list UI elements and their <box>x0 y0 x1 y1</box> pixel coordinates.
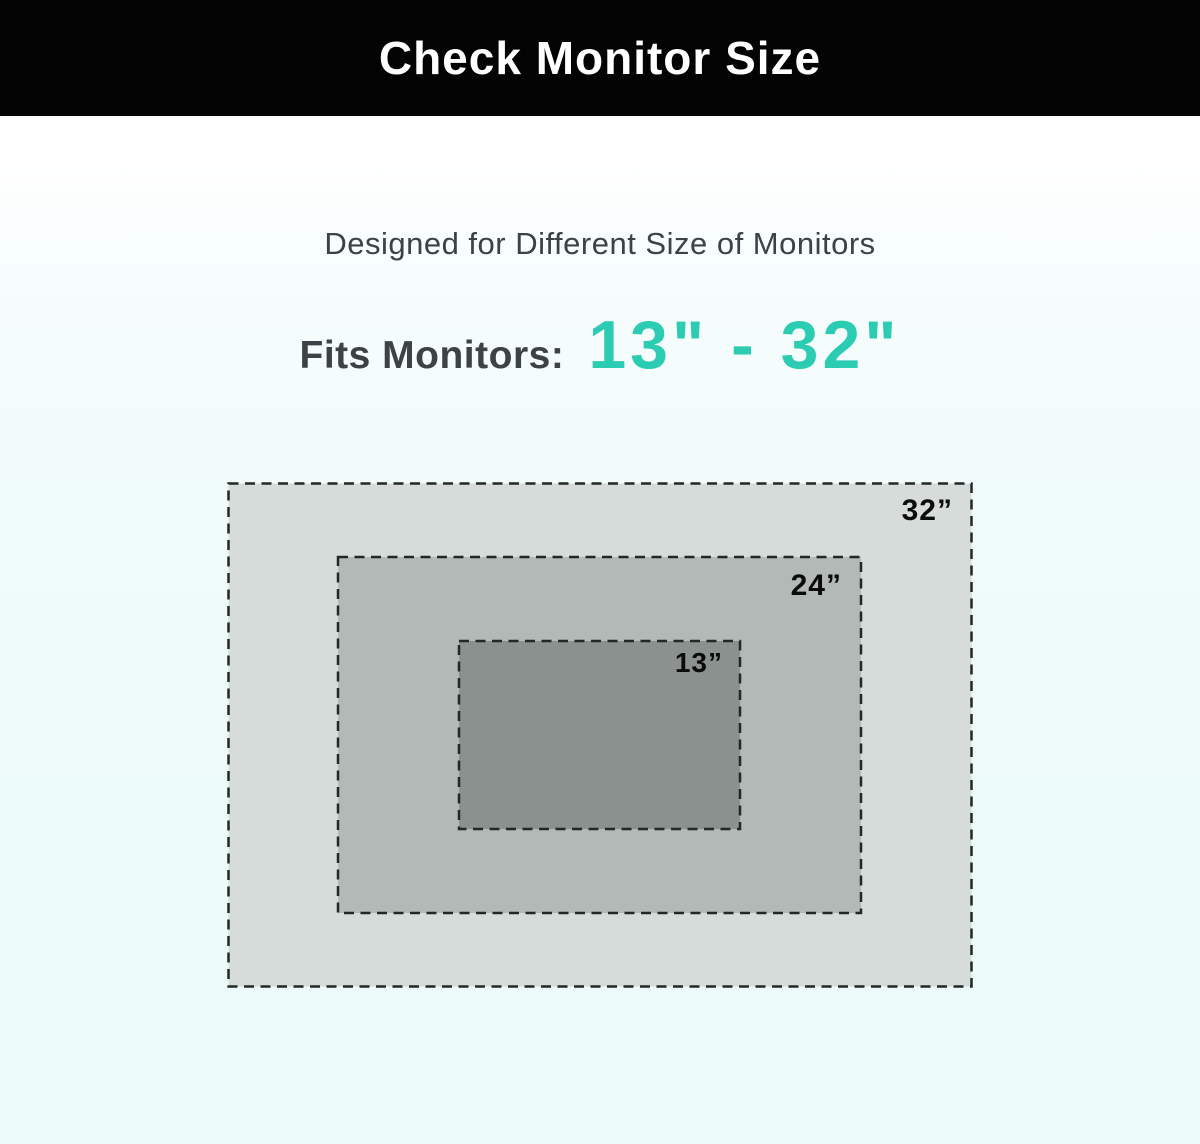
monitor-size-diagram: 32” 24” 13” <box>227 482 973 988</box>
page-title: Check Monitor Size <box>379 31 821 85</box>
monitor-size-infographic: Check Monitor Size Designed for Differen… <box>0 0 1200 1144</box>
subtitle-text: Designed for Different Size of Monitors <box>0 226 1200 262</box>
size-label-32: 32” <box>902 494 953 528</box>
nested-monitor-rectangles <box>227 482 973 988</box>
header-bar: Check Monitor Size <box>0 0 1200 116</box>
size-label-24: 24” <box>791 569 842 603</box>
fits-monitors-label: Fits Monitors: <box>300 334 565 378</box>
fits-monitors-line: Fits Monitors: 13" - 32" <box>0 306 1200 384</box>
size-label-13: 13” <box>675 647 723 679</box>
fits-monitors-range: 13" - 32" <box>588 306 900 384</box>
